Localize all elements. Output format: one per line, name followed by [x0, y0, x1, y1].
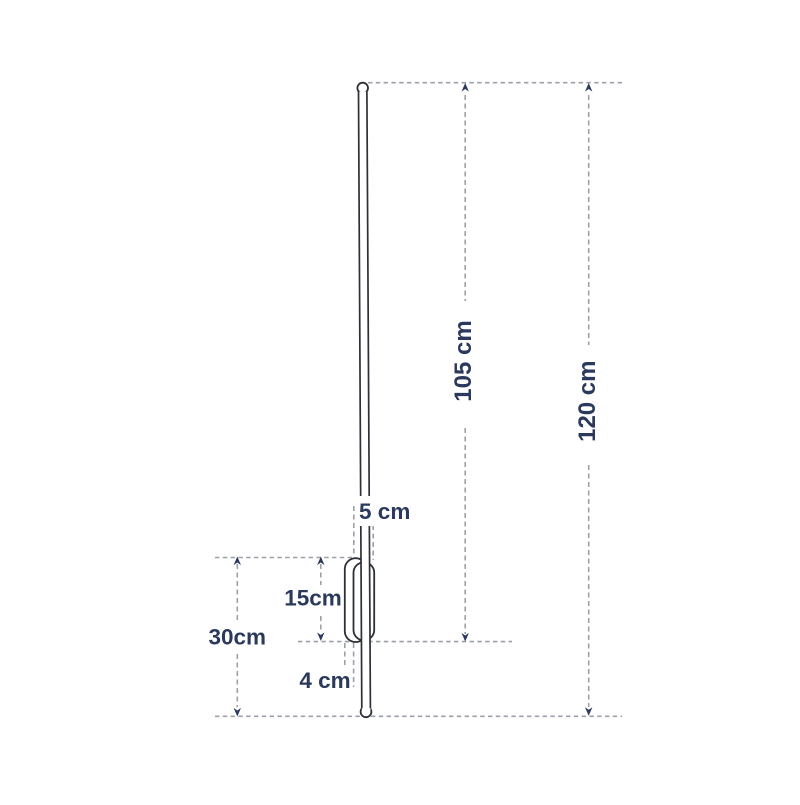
- svg-text:30cm: 30cm: [209, 624, 267, 649]
- svg-text:4 cm: 4 cm: [299, 668, 350, 693]
- svg-text:15cm: 15cm: [284, 585, 342, 610]
- svg-text:120 cm: 120 cm: [574, 360, 601, 441]
- svg-text:105 cm: 105 cm: [450, 320, 477, 401]
- svg-text:5 cm: 5 cm: [359, 499, 410, 524]
